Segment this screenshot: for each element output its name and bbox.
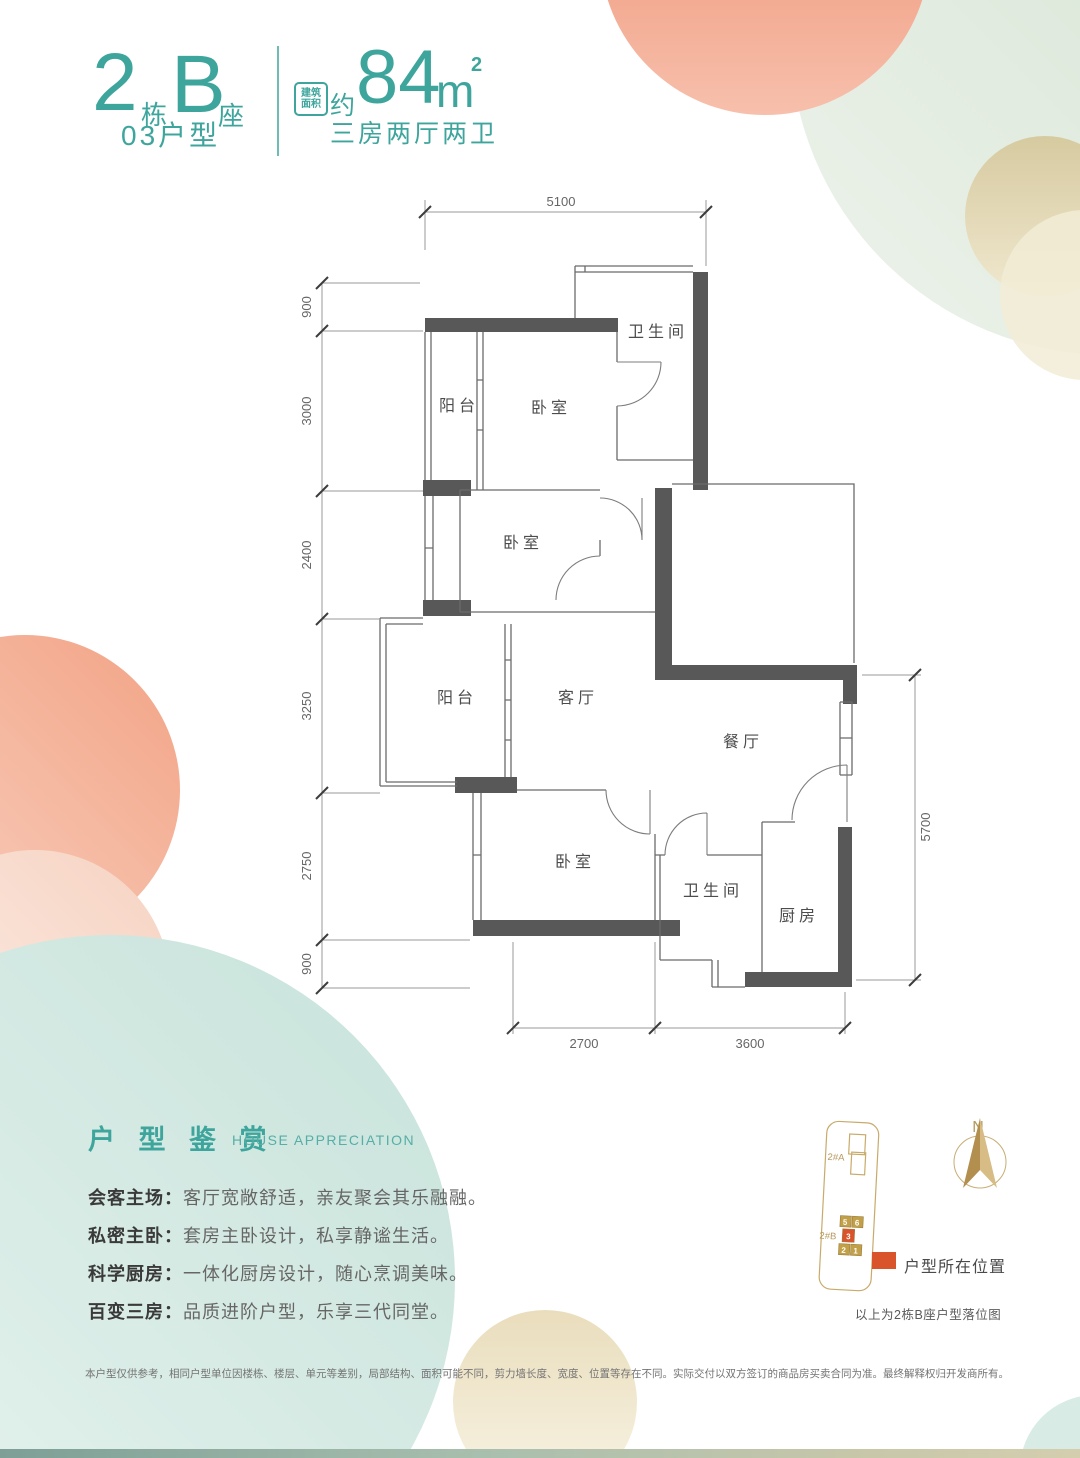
disclaimer-text: 本户型仅供参考，相同户型单位因楼栋、楼层、单元等差别，局部结构、面积可能不同，剪…: [85, 1366, 1009, 1381]
site-location-map: 5 6 3 2 1 2#A 2#B N: [0, 0, 1080, 1458]
legend-text: 户型所在位置: [904, 1253, 1006, 1277]
floorplan-poster-page: 2 栋 B 座 03户型 建筑 面积 约 84 m 2 三房两厅两卫: [0, 0, 1080, 1458]
site-boundary: [819, 1121, 880, 1291]
compass-icon: N: [954, 1118, 1006, 1188]
building-b-label: 2#B: [819, 1231, 836, 1243]
building-a-label: 2#A: [827, 1152, 845, 1164]
legend-highlight-swatch: [872, 1252, 896, 1269]
sitemap-caption: 以上为2栋B座户型落位图: [855, 1304, 1001, 1323]
